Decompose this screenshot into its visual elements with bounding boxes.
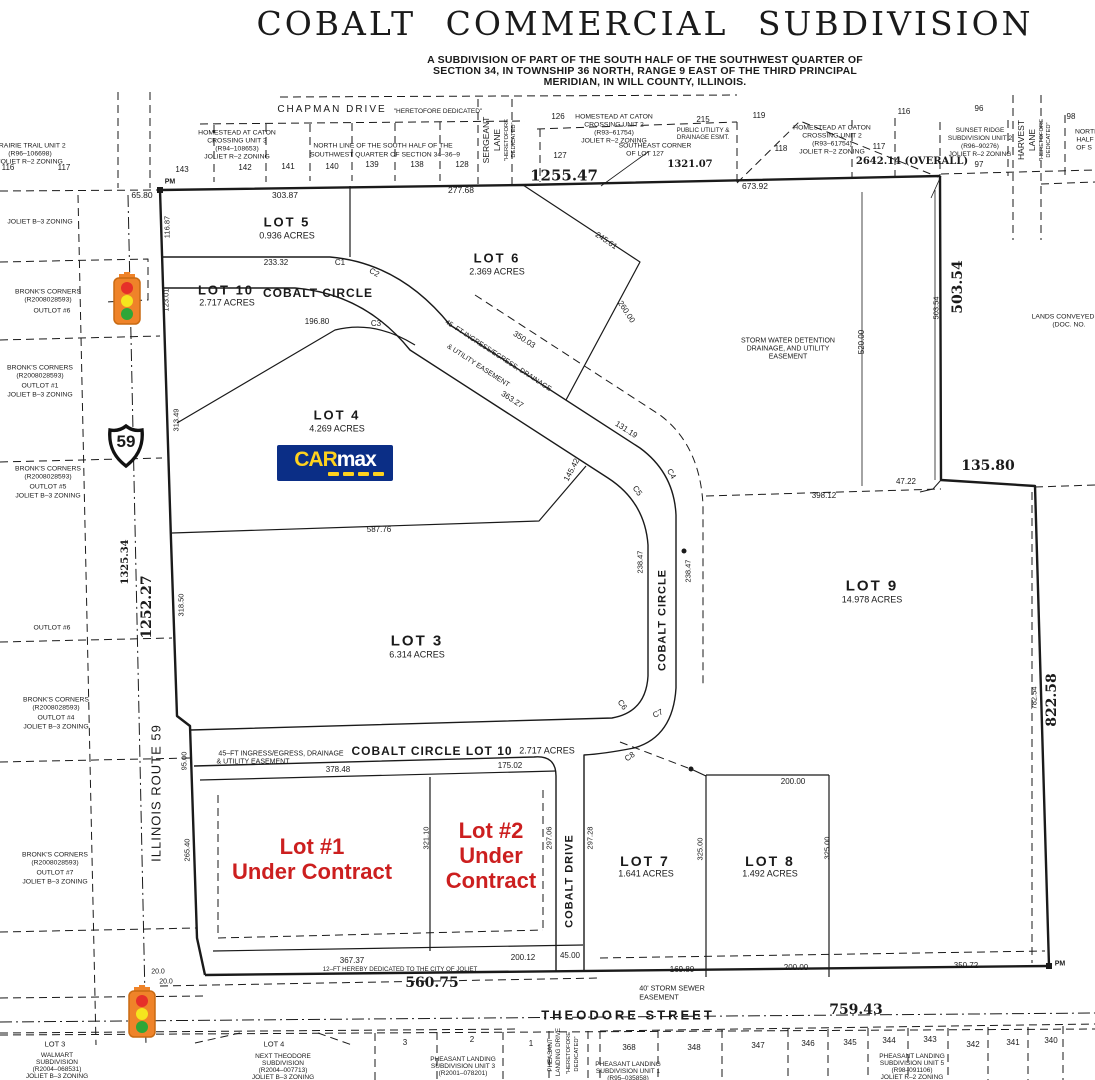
map-text: JOLIET B–3 ZONING [22, 880, 87, 887]
map-text: (R2008028593) [31, 861, 78, 868]
map-text: OF S [1076, 146, 1092, 153]
map-text: 2 [470, 1036, 474, 1044]
map-text: 782.54 [1030, 687, 1038, 710]
map-text: 98 [1067, 113, 1076, 121]
road-label-cobalt-circle-vertical: COBALT CIRCLE [658, 569, 669, 671]
map-text: 321.10 [422, 827, 430, 850]
plat-map: COBALT COMMERCIAL SUBDIVISION A SUBDIVIS… [0, 0, 1095, 1080]
map-text: 128 [455, 161, 468, 169]
map-text: 20.0 [151, 969, 165, 976]
map-text: 344 [882, 1037, 895, 1045]
map-text: 345 [843, 1039, 856, 1047]
subtitle-line-3: MERIDIAN, IN WILL COUNTY, ILLINOIS. [300, 77, 990, 88]
map-text: SOUTHEAST CORNER [619, 144, 692, 151]
map-text: 560.75 [405, 976, 459, 990]
page-title: COBALT COMMERCIAL SUBDIVISION [250, 4, 1040, 43]
map-text: SUBDIVISION UNIT 2 [948, 136, 1012, 143]
map-text: 0.936 ACRES [259, 232, 315, 241]
road-label-chapman-drive: CHAPMAN DRIVE [277, 105, 386, 115]
map-text: CROSSING UNIT 3 [207, 139, 267, 146]
map-text: 65.80 [131, 191, 152, 200]
carmax-car-text: CAR [294, 448, 337, 471]
map-text: 398.12 [812, 492, 836, 500]
map-text: Under [459, 845, 523, 867]
map-text: BRONK'S CORNERS [15, 290, 81, 297]
map-text: OUTLOT #6 [34, 309, 71, 316]
map-text: 341 [1006, 1039, 1019, 1047]
map-text: NORTH LINE OF THE SOUTH HALF OF THE [313, 144, 452, 151]
map-text: 116.87 [163, 216, 171, 238]
map-text: 297.28 [586, 827, 594, 850]
map-text: "HERETOFORE [505, 119, 511, 161]
map-text: 123.01 [162, 289, 170, 312]
map-text: 215 [696, 116, 709, 124]
lot-10-label: LOT 10 [198, 284, 254, 297]
map-text: 126 [551, 113, 564, 121]
map-text: (R2008028593) [16, 374, 63, 381]
map-text: (R95–035858) [607, 1076, 649, 1080]
map-text: DEDICATED" [512, 122, 518, 157]
pm-marker-label: PM [1055, 961, 1066, 968]
map-text: JOLIET B–3 ZONING [15, 494, 80, 501]
map-text: 45.00 [560, 952, 580, 960]
map-text: 6.314 ACRES [389, 651, 445, 660]
map-text: & UTILITY EASEMENT [217, 759, 290, 766]
lot-6-label: LOT 6 [474, 252, 521, 265]
map-text: (R93–61754) [594, 131, 634, 138]
map-text: LANDING DRIVE [556, 1028, 562, 1076]
map-text: 1.492 ACRES [742, 870, 798, 879]
map-text: BRONK'S CORNERS [7, 366, 73, 373]
map-text: DRAINAGE ESMT. [677, 135, 729, 141]
map-text: 343 [923, 1036, 936, 1044]
map-text: PRAIRIE TRAIL UNIT 2 [0, 144, 66, 151]
map-text: LANDS CONVEYED [1032, 315, 1095, 322]
map-text: "HERETOFORE [1040, 119, 1046, 161]
map-text: OUTLOT #6 [34, 626, 71, 633]
map-text: 116 [2, 164, 15, 172]
map-text: NORTH [1075, 130, 1095, 137]
map-text: 116 [898, 108, 911, 116]
carmax-wordmark: CARmax [294, 448, 376, 472]
map-text: 265.40 [183, 839, 191, 862]
map-text: 822.58 [1045, 673, 1059, 727]
map-text: (R93–61754) [812, 142, 852, 149]
map-text: 95.00 [180, 752, 188, 771]
road-label-cobalt-drive: COBALT DRIVE [565, 834, 576, 928]
map-text: 1321.07 [667, 160, 712, 170]
map-text: 117 [58, 164, 71, 172]
map-text: Under Contract [232, 861, 392, 883]
map-text: SUNSET RIDGE [956, 128, 1005, 135]
map-text: 587.76 [367, 526, 391, 534]
map-text: 200.00 [781, 778, 805, 786]
map-text: DRAINAGE, AND UTILITY [747, 346, 830, 353]
map-text: 325.00 [823, 837, 831, 860]
map-text: BRONK'S CORNERS [15, 467, 81, 474]
map-text: JOLIET R–2 ZONING [881, 1075, 944, 1080]
lot-3-label: LOT 3 [391, 634, 444, 649]
road-label-cobalt-circle-upper: COBALT CIRCLE [263, 287, 373, 299]
map-text: 277.68 [448, 186, 474, 195]
map-text: 238.47 [684, 560, 692, 583]
map-text: OUTLOT #4 [38, 716, 75, 723]
lot-5-label: LOT 5 [264, 216, 311, 229]
traffic-signal-icon [129, 985, 155, 1037]
map-text: 175.02 [498, 762, 522, 770]
map-text: HALF [1076, 138, 1093, 145]
map-text: 367.37 [340, 957, 364, 965]
map-text: LANE [1028, 129, 1037, 151]
map-text: (R2001–078201) [439, 1071, 488, 1078]
road-label-theodore-street: THEODORE STREET [541, 1009, 715, 1022]
map-text: OUTLOT #1 [22, 384, 59, 391]
map-text: 325.00 [696, 838, 704, 861]
map-text: LOT 4 [264, 1040, 285, 1048]
map-text: 2.717 ACRES [199, 299, 255, 308]
road-label-pheasant-landing-drive: PHEASANT [548, 1038, 554, 1071]
map-text: 297.06 [545, 827, 553, 850]
map-text: "HERETOFORE [567, 1032, 573, 1074]
dimension-lines [601, 152, 941, 486]
map-text: 346 [801, 1040, 814, 1048]
traffic-signal-icon [114, 272, 140, 324]
map-text: (R96–90276) [961, 144, 999, 151]
map-text: LOT 3 [45, 1040, 66, 1048]
map-text: 14.978 ACRES [842, 596, 903, 605]
map-text: JOLIET R–2 ZONING [204, 155, 270, 162]
pm-marker-label: PM [165, 179, 176, 186]
map-text: 47.22 [896, 478, 916, 486]
lot-4-label: LOT 4 [314, 409, 361, 422]
map-text: 342 [966, 1041, 979, 1049]
map-text: (DOC. NO. [1052, 323, 1085, 330]
map-text: OUTLOT #5 [30, 485, 67, 492]
map-text: 4.269 ACRES [309, 425, 365, 434]
lot-2-under-contract: Lot #2 [459, 820, 524, 842]
map-text: Contract [446, 870, 536, 892]
lot-8-label: LOT 8 [745, 854, 795, 868]
map-text: 1.641 ACRES [618, 870, 674, 879]
map-text: JOLIET B–3 ZONING [7, 220, 72, 227]
road-label-cobalt-circle-lower: COBALT CIRCLE LOT 10 [351, 745, 512, 757]
map-text: 12–FT HEREBY DEDICATED TO THE CITY OF JO… [323, 967, 478, 973]
map-text: HOMESTEAD AT CATON [793, 126, 871, 133]
map-text: 200.12 [511, 954, 535, 962]
boundary-jog [920, 480, 941, 492]
lot-9-label: LOT 9 [846, 579, 899, 594]
map-text: 141 [281, 163, 294, 171]
map-text: C1 [335, 259, 345, 267]
map-text: 196.80 [305, 318, 329, 326]
map-text: JOLIET B–3 ZONING [7, 393, 72, 400]
map-text: HOMESTEAD AT CATON [575, 115, 653, 122]
map-text: "HERETOFORE DEDICATED" [394, 109, 483, 116]
map-text: 368 [622, 1044, 635, 1052]
map-text: C3 [371, 320, 381, 328]
map-text: 673.92 [742, 182, 768, 191]
lot-1-under-contract: Lot #1 [280, 836, 345, 858]
map-text: EASEMENT [639, 993, 679, 1000]
route-59-shield: 59 [107, 423, 145, 469]
map-text: 340 [1044, 1037, 1057, 1045]
map-text: 169.80 [670, 966, 694, 974]
map-text: 233.32 [264, 259, 288, 267]
map-text: 348 [687, 1044, 700, 1052]
map-text: CROSSING UNIT 2 [802, 134, 862, 141]
map-text: 2.717 ACRES [519, 747, 575, 756]
map-text: BRONK'S CORNERS [23, 698, 89, 705]
map-text: 20.0 [159, 979, 173, 986]
map-text: 117 [873, 143, 886, 151]
map-text: 142 [238, 164, 251, 172]
map-text: DEDICATED" [575, 1036, 581, 1071]
carmax-max-text: max [337, 448, 376, 471]
map-text: 96 [975, 105, 984, 113]
dimension-1255-47: 1255.47 [530, 169, 598, 184]
map-text: HOMESTEAD AT CATON [198, 131, 276, 138]
map-text: 138 [410, 161, 423, 169]
map-text: 759.43 [829, 1003, 883, 1017]
map-text: 140 [325, 163, 338, 171]
road-label-harvest-lane: HARVEST [1017, 120, 1026, 160]
map-text: STORM WATER DETENTION [741, 338, 835, 345]
carmax-dashes-icon [328, 472, 384, 476]
map-text: 1325.34 [121, 539, 131, 584]
map-text: DEDICATED" [1047, 122, 1053, 157]
dimension-overall: 2642.14 (OVERALL) [856, 157, 968, 167]
road-label-sergeant-lane: SERGEANT [482, 117, 491, 164]
map-text: JOLIET R–2 ZONING [799, 150, 865, 157]
map-text: 118 [775, 145, 788, 153]
map-text: 318.50 [177, 594, 185, 617]
lot-7-label: LOT 7 [620, 854, 670, 868]
map-text: 127 [553, 152, 566, 160]
map-text: (R2008028593) [24, 298, 71, 305]
map-text: JOLIET R–2 ZONING [949, 152, 1012, 159]
page-subtitle: A SUBDIVISION OF PART OF THE SOUTH HALF … [300, 55, 990, 88]
map-text: 1 [529, 1040, 533, 1048]
map-text: 119 [753, 112, 766, 120]
route-number: 59 [107, 432, 145, 452]
road-label-illinois-route-59: ILLINOIS ROUTE 59 [150, 724, 163, 862]
map-text: CROSSING UNIT 2 [584, 123, 644, 130]
map-text: JOLIET B–3 ZONING [23, 725, 88, 732]
map-text: 45–FT INGRESS/EGRESS, DRAINAGE [218, 751, 343, 758]
map-text: OUTLOT #7 [37, 871, 74, 878]
map-text: 139 [365, 161, 378, 169]
map-text: SOUTHWEST QUARTER OF SECTION 34–36–9 [310, 153, 460, 160]
map-text: BRONK'S CORNERS [22, 853, 88, 860]
map-text: (R2008028593) [24, 475, 71, 482]
map-text: 303.87 [272, 191, 298, 200]
map-text: 2.369 ACRES [469, 268, 525, 277]
map-text: 3 [403, 1039, 407, 1047]
dashed-lines [0, 92, 1095, 1080]
map-text: (R94–108653) [215, 147, 258, 154]
map-text: 350.72 [954, 962, 978, 970]
map-text: 503.54 [951, 260, 965, 314]
map-text: JOLIET B–3 ZONING [252, 1075, 314, 1080]
map-text: 378.48 [326, 766, 350, 774]
map-text: 1252.27 [140, 575, 154, 638]
map-text: 238.47 [636, 551, 644, 574]
map-text: LANE [493, 129, 502, 151]
map-text: (R2008028593) [32, 706, 79, 713]
map-text: 40' STORM SEWER [639, 984, 705, 991]
carmax-logo: CARmax [277, 445, 393, 481]
map-text: 520.00 [858, 330, 866, 354]
map-text: (R96–106698) [8, 152, 51, 159]
map-text: 135.80 [961, 459, 1015, 473]
map-text: OF LOT 127 [626, 152, 664, 159]
map-text: EASEMENT [769, 354, 808, 361]
map-text: 503.54 [932, 297, 940, 320]
map-text: 200.00 [784, 964, 808, 972]
map-text: 347 [751, 1042, 764, 1050]
map-text: JOLIET B–3 ZONING [26, 1074, 88, 1080]
map-text: 313.49 [172, 409, 180, 432]
map-text: 143 [175, 166, 188, 174]
map-text: 97 [975, 161, 984, 169]
